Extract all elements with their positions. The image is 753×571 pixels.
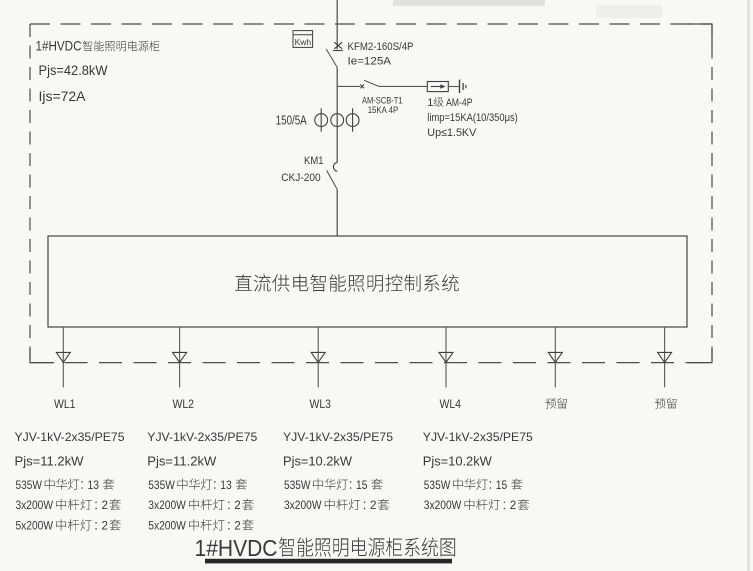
svg-text:535W: 535W xyxy=(284,478,311,492)
svg-text:KM1: KM1 xyxy=(304,155,324,167)
svg-text:YJV-1kV-2x35/PE75: YJV-1kV-2x35/PE75 xyxy=(423,430,533,444)
svg-text:Pjs=11.2kW: Pjs=11.2kW xyxy=(147,455,216,469)
svg-text:Ijs=72A: Ijs=72A xyxy=(39,89,86,104)
svg-text:5x200W: 5x200W xyxy=(16,519,54,533)
svg-text:13: 13 xyxy=(88,478,100,492)
svg-text:YJV-1kV-2x35/PE75: YJV-1kV-2x35/PE75 xyxy=(147,430,257,444)
svg-text:Pjs=11.2kW: Pjs=11.2kW xyxy=(15,455,84,469)
svg-text:3x200W: 3x200W xyxy=(148,498,186,512)
svg-text:1: 1 xyxy=(427,97,433,109)
svg-text:1#HVDC: 1#HVDC xyxy=(36,38,82,54)
svg-text:AM-4P: AM-4P xyxy=(446,97,473,109)
svg-text:2: 2 xyxy=(102,498,109,512)
svg-text:3x200W: 3x200W xyxy=(16,498,54,512)
svg-text:YJV-1kV-2x35/PE75: YJV-1kV-2x35/PE75 xyxy=(15,430,125,444)
svg-text:15: 15 xyxy=(496,478,508,492)
svg-text:2: 2 xyxy=(234,519,241,533)
svg-text:WL1: WL1 xyxy=(54,399,76,411)
svg-text:Ie=125A: Ie=125A xyxy=(348,55,392,67)
svg-text:Pjs=42.8kW: Pjs=42.8kW xyxy=(39,63,108,78)
svg-text:YJV-1kV-2x35/PE75: YJV-1kV-2x35/PE75 xyxy=(283,430,393,444)
svg-text:2: 2 xyxy=(370,498,377,512)
svg-text:Pjs=10.2kW: Pjs=10.2kW xyxy=(283,455,352,469)
svg-text:WL4: WL4 xyxy=(440,399,462,411)
svg-text:15: 15 xyxy=(356,478,368,492)
svg-text:Kwh: Kwh xyxy=(295,37,312,47)
svg-text:2: 2 xyxy=(510,498,517,512)
svg-text:535W: 535W xyxy=(148,478,175,492)
svg-text:CKJ-200: CKJ-200 xyxy=(281,172,321,184)
svg-text:Pjs=10.2kW: Pjs=10.2kW xyxy=(423,455,492,469)
svg-text:535W: 535W xyxy=(424,478,451,492)
svg-text:WL3: WL3 xyxy=(310,399,332,411)
svg-text:15KA 4P: 15KA 4P xyxy=(368,105,399,116)
svg-text:3x200W: 3x200W xyxy=(284,498,322,512)
svg-text:limp=15KA(10/350μs): limp=15KA(10/350μs) xyxy=(427,112,518,124)
svg-text:13: 13 xyxy=(220,478,232,492)
svg-text:5x200W: 5x200W xyxy=(148,519,186,533)
svg-text:Up≤1.5KV: Up≤1.5KV xyxy=(427,127,477,139)
svg-text:1#HVDC: 1#HVDC xyxy=(195,535,278,561)
svg-text:WL2: WL2 xyxy=(173,399,195,411)
svg-text:150/5A: 150/5A xyxy=(276,113,308,127)
svg-text:2: 2 xyxy=(102,519,109,533)
svg-text:2: 2 xyxy=(234,498,241,512)
svg-text:3x200W: 3x200W xyxy=(424,498,462,512)
svg-text:KFM2-160S/4P: KFM2-160S/4P xyxy=(348,41,414,53)
svg-text:535W: 535W xyxy=(16,478,43,492)
